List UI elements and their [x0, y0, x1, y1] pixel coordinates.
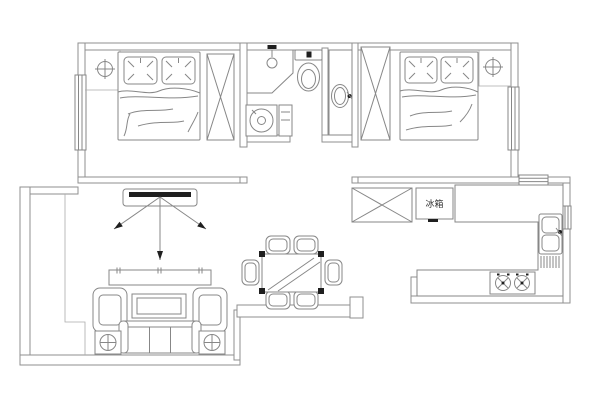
- dining-chair: [266, 291, 290, 309]
- bed-left: [118, 52, 200, 140]
- dining-chair: [266, 236, 290, 254]
- washbasin-icon: [329, 50, 352, 135]
- shower-icon: [247, 45, 293, 93]
- dining-chair: [325, 260, 342, 285]
- dining-chair: [242, 260, 259, 285]
- window-kitchen-top: [519, 175, 548, 185]
- dining-area: [242, 236, 342, 309]
- bedroom-left: [85, 50, 234, 140]
- bed-right: [400, 52, 478, 140]
- dining-table: [259, 251, 324, 294]
- dining-chair: [294, 236, 318, 254]
- bathroom: [246, 45, 352, 136]
- washing-machine-icon: [246, 105, 292, 136]
- storage-cabinet-icon: [352, 188, 412, 222]
- floor-plan: 冰箱: [0, 0, 600, 400]
- stove-icon: [490, 272, 535, 294]
- toilet-icon: [295, 50, 322, 91]
- light-cell: [85, 50, 120, 90]
- side-table-left: [95, 331, 121, 354]
- ceiling-light-right-icon: [483, 57, 503, 77]
- light-cell: [479, 50, 511, 86]
- fridge-label: 冰箱: [425, 198, 443, 210]
- window-left-bedroom: [75, 75, 86, 150]
- coffee-table: [132, 294, 186, 318]
- dining-chair: [294, 291, 318, 309]
- ceiling-light-left-icon: [95, 59, 115, 79]
- wardrobe-left-icon: [207, 54, 234, 140]
- sofa: [119, 321, 201, 353]
- wardrobe-right-icon: [361, 47, 390, 140]
- kitchen: 冰箱: [352, 185, 563, 296]
- tv-console: [109, 268, 211, 286]
- fridge: 冰箱: [416, 188, 453, 222]
- floor-line: [65, 194, 85, 355]
- floor-plan-page: 冰箱: [0, 0, 600, 400]
- tv-screen: [129, 192, 191, 197]
- side-table-right: [199, 331, 225, 354]
- window-right-bedroom: [508, 87, 519, 150]
- living-room: [65, 189, 227, 355]
- entry-step: [350, 297, 363, 318]
- bedroom-right: [361, 47, 511, 140]
